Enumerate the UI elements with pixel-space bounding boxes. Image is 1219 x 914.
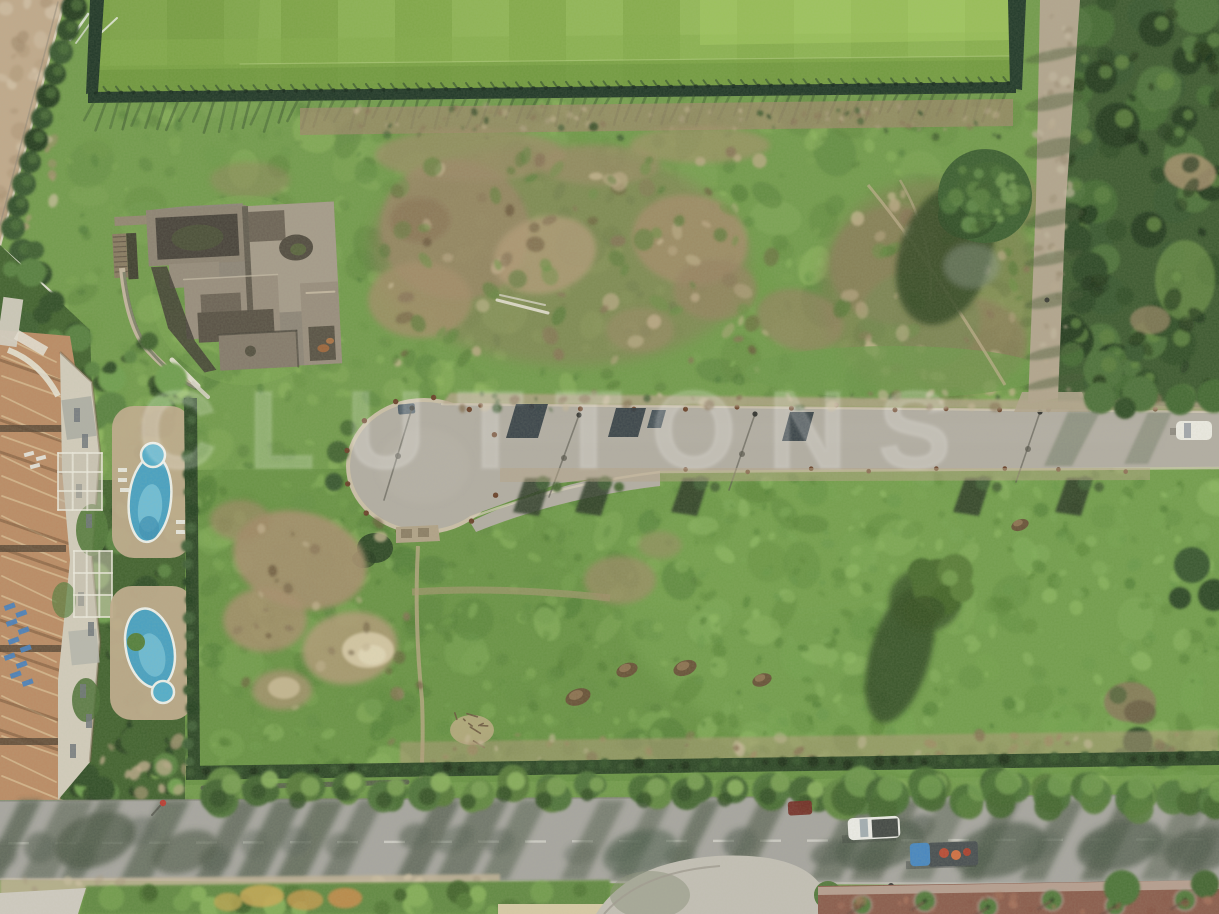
svg-text:CLUTTONS: CLUTTONS [138, 369, 983, 492]
